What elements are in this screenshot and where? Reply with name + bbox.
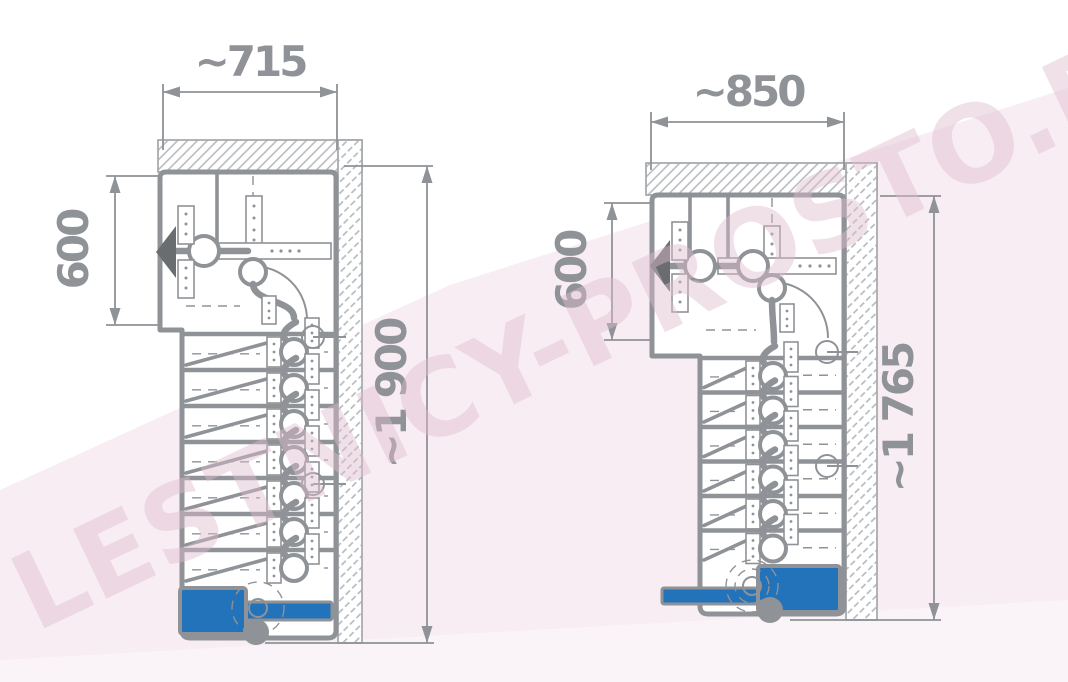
technical-drawing: ~715 600 ~1 900 — [0, 0, 1068, 682]
blueprint-canvas: ~715 600 ~1 900 — [0, 0, 1068, 682]
bottom-support-pole — [757, 597, 783, 623]
support-pole-joint — [685, 251, 715, 281]
dimension-depth-left: 600 — [49, 176, 158, 325]
dimension-depth-right-label: 600 — [547, 230, 596, 310]
bottom-support-pole — [243, 619, 269, 645]
dimension-height-right-label: ~1 765 — [874, 343, 923, 492]
dimension-height-left-label: ~1 900 — [367, 318, 416, 468]
dimension-width-left-label: ~715 — [195, 37, 307, 86]
dimension-depth-left-label: 600 — [49, 209, 98, 289]
dimension-width-right: ~850 — [651, 67, 844, 170]
dimension-width-right-label: ~850 — [693, 67, 806, 116]
dimension-width-left: ~715 — [163, 37, 337, 150]
